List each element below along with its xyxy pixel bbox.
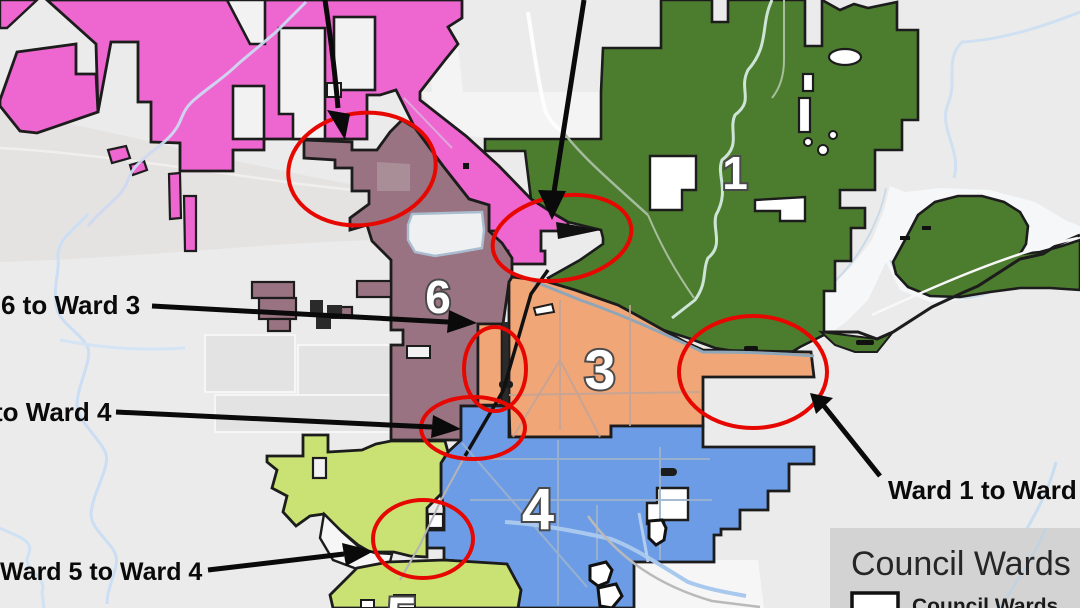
svg-text:Ward 1 to Ward 3: Ward 1 to Ward 3 — [888, 475, 1080, 505]
svg-text:Ward 5 to Ward 4: Ward 5 to Ward 4 — [0, 558, 202, 586]
svg-text:6: 6 — [425, 271, 451, 323]
svg-text:4: 4 — [522, 477, 554, 542]
svg-text:Council Wards: Council Wards — [851, 545, 1071, 583]
svg-text:5: 5 — [386, 585, 417, 608]
svg-text:Council Wards: Council Wards — [912, 595, 1058, 608]
svg-text:3: 3 — [584, 338, 615, 401]
svg-text:1: 1 — [722, 147, 748, 199]
svg-text:6 to Ward 3: 6 to Ward 3 — [1, 290, 140, 320]
svg-text:to Ward 4: to Ward 4 — [0, 397, 112, 427]
